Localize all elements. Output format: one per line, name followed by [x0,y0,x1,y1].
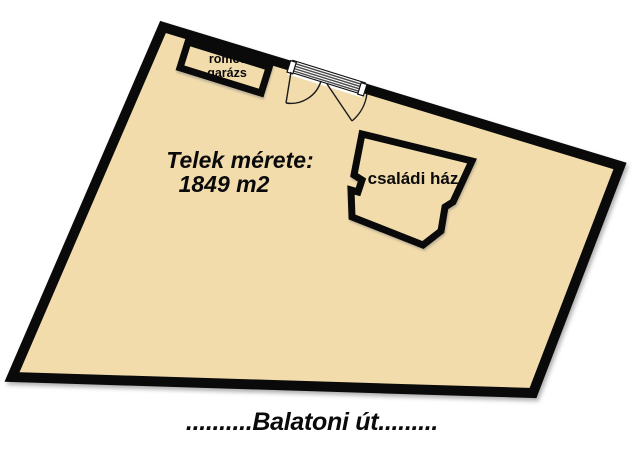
garage-label-line2: garázs [207,66,247,80]
site-plan-canvas: Telek mérete: 1849 m2 családi ház romos … [0,0,640,452]
garage-label-line1: romos [209,52,247,66]
plot-size-label-line1: Telek mérete: [166,147,313,173]
site-plan: Telek mérete: 1849 m2 családi ház romos … [0,0,640,452]
house-label: családi ház [368,169,459,188]
street-label: ..........Balatoni út......... [186,408,438,436]
plot-size-label-line2: 1849 m2 [179,171,270,197]
